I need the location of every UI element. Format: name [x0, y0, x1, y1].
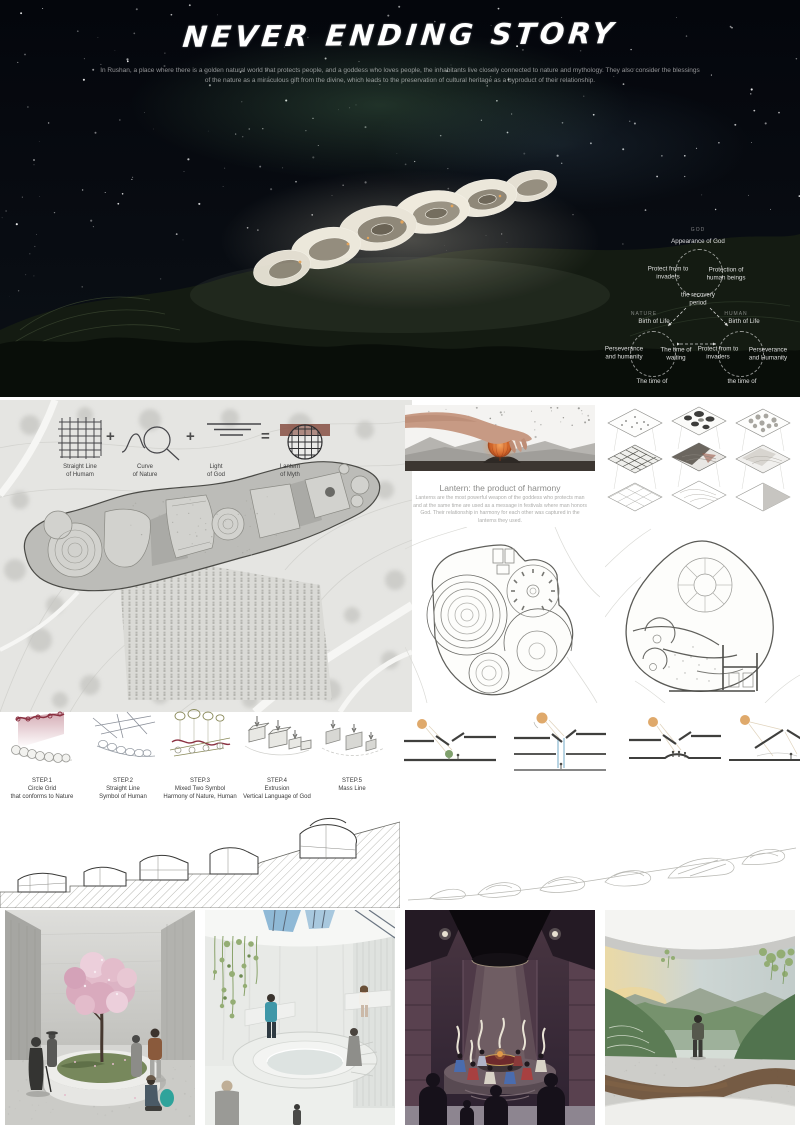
step1-label: STEP.1Circle Gridthat conforms to Nature: [2, 777, 82, 801]
lantern-photo: [405, 405, 595, 471]
sun-section-4: [727, 708, 800, 780]
hero-render: NEVER ENDING STORY In Rushan, a place wh…: [0, 0, 800, 397]
human-tag: HUMAN: [724, 311, 747, 317]
sun-section-3: [627, 708, 723, 780]
axon-plate-contours-light: [672, 481, 726, 509]
sun-icon: [740, 715, 750, 725]
sun-diagram-4: [727, 708, 800, 785]
render-spiral-atrium: [205, 910, 395, 1125]
theater-scene: [405, 910, 595, 1125]
intro-line-2: of the nature as a miraculous gift from …: [205, 77, 595, 84]
axon-plate-half-shaded: [736, 483, 790, 511]
nature-right-node: The time of waiting: [658, 346, 694, 362]
atrium-scene: [205, 910, 395, 1125]
sun-icon: [417, 719, 427, 729]
concept-label-lantern: Lanternof Myth: [251, 463, 329, 480]
step3-diagram: [164, 708, 236, 766]
step5-label: STEP.5Mass Line: [312, 777, 392, 793]
god-top-node: Appearance of God: [666, 238, 730, 246]
tree-icon: [445, 750, 453, 760]
step3-label: STEP.3Mixed Two SymbolHarmony of Nature,…: [160, 777, 240, 801]
step4-diagram: [241, 708, 313, 766]
axon-plate-blockgrid: [602, 445, 662, 473]
poster-intro: In Rushan, a place where there is a gold…: [80, 66, 720, 87]
lookout-scene: [605, 910, 795, 1125]
lantern-section-body: Lanterns are the most powerful weapon of…: [411, 495, 589, 525]
axon-plate-terrain-light: [736, 445, 790, 473]
axon-plate-terrain-shaded: [672, 443, 726, 471]
poster-title: NEVER ENDING STORY: [0, 15, 800, 56]
step4-label: STEP.4ExtrusionVertical Language of God: [237, 777, 317, 801]
myth-cycle-diagram: GOD Appearance of God Protect from to in…: [586, 222, 800, 394]
light-icon: [205, 421, 263, 437]
plan-left-outline: [432, 545, 572, 695]
curve-icon: [120, 420, 182, 462]
step-2: STEP.2Straight LineSymbol of Human: [83, 708, 163, 801]
nature-bottom-node: The time of: [629, 378, 675, 386]
grid-icon: [57, 416, 103, 460]
step-1: STEP.1Circle Gridthat conforms to Nature: [2, 708, 82, 801]
sun-diagram-2: [512, 708, 608, 785]
concept-label-curve: Curveof Nature: [106, 463, 184, 480]
nature-left-node: Perseverance and humanity: [601, 345, 647, 361]
site-section-elevation: [0, 812, 400, 908]
step1-diagram: [6, 708, 78, 766]
lantern-section-heading: Lantern: the product of harmony: [405, 483, 595, 493]
sun-icon: [648, 717, 658, 727]
massing-sketch-elevation: [400, 812, 800, 908]
floor-plan-left: [405, 527, 600, 703]
equals-operator: =: [261, 428, 270, 445]
slope-line: [408, 848, 796, 900]
plus-operator-1: +: [106, 428, 115, 445]
render-courtyard-cherry-tree: [5, 910, 195, 1125]
render-lantern-theater: [405, 910, 595, 1125]
step-4: STEP.4ExtrusionVertical Language of God: [237, 708, 317, 801]
render-valley-lookout: [605, 910, 795, 1125]
axon-plate-dark-blobs: [672, 407, 726, 435]
god-left-node: Protect from to invaders: [645, 265, 691, 281]
cycle-arrows: [586, 222, 800, 394]
courtyard-scene: [5, 910, 195, 1125]
human-right-node: Perseverance and Humanity: [746, 346, 790, 362]
person-mark: [560, 763, 563, 769]
child-figure: [293, 1104, 301, 1125]
step-3: STEP.3Mixed Two SymbolHarmony of Nature,…: [160, 708, 240, 801]
step-5: STEP.5Mass Line: [312, 708, 392, 793]
axon-plate-texture-blobs: [736, 409, 790, 437]
axon-plate-dots: [608, 409, 662, 437]
floor-plan-right: [605, 527, 800, 703]
presentation-board: NEVER ENDING STORY In Rushan, a place wh…: [0, 0, 800, 1132]
human-left-node: Protect from to invaders: [697, 345, 739, 361]
axon-plate-linegrid: [608, 483, 662, 511]
nature-top-node: Birth of Life: [631, 318, 677, 326]
god-center-node: the recovery period: [672, 291, 724, 307]
nature-tag: NATURE: [631, 311, 657, 317]
intro-line-1: In Rushan, a place where there is a gold…: [100, 67, 700, 74]
step5-diagram: [316, 708, 388, 766]
sun-icon: [537, 713, 548, 724]
concept-equation: + + = Straight Lineof Humam Curveof Nat: [28, 405, 340, 481]
plan-right-outline: [626, 541, 773, 691]
god-right-node: Protection of human beings: [701, 266, 751, 282]
ceiling: [205, 910, 395, 947]
sun-section-2: [512, 708, 608, 780]
person-mark: [790, 753, 793, 759]
axon-stack-diagram: [598, 403, 800, 538]
step2-diagram: [87, 708, 159, 766]
sun-diagram-3: [627, 708, 723, 785]
plus-operator-2: +: [186, 428, 195, 445]
human-bottom-node: the time of: [722, 378, 762, 386]
concept-label-light: Lightof God: [177, 463, 255, 480]
human-top-node: Birth of Life: [722, 318, 766, 326]
sun-section-1: [402, 708, 498, 780]
lantern-grid-icon: [278, 419, 332, 463]
sun-diagram-1: [402, 708, 498, 785]
step2-label: STEP.2Straight LineSymbol of Human: [83, 777, 163, 801]
god-tag: GOD: [691, 227, 705, 233]
